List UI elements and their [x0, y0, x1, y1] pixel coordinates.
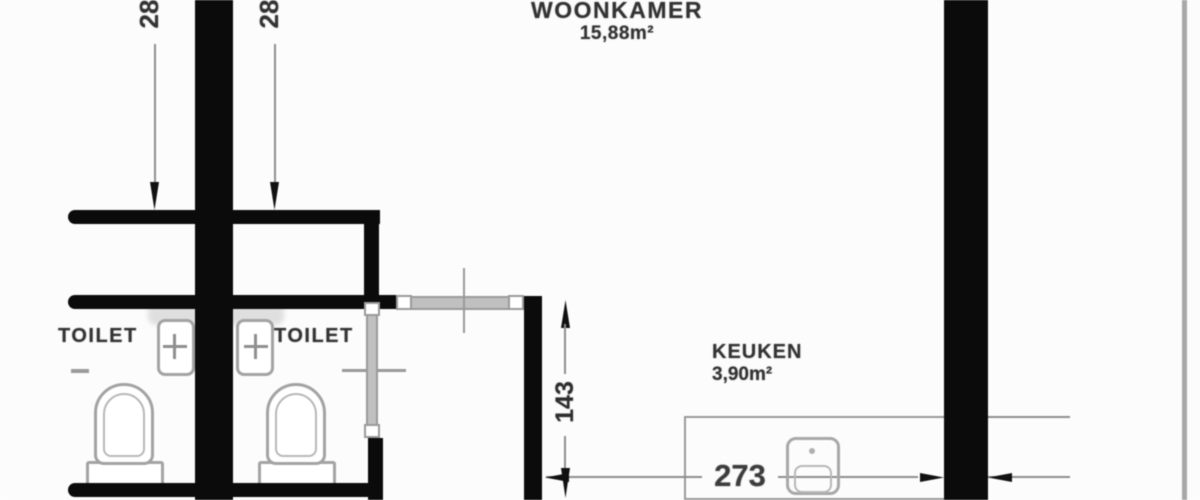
dimension-arrow-down-icon — [561, 468, 570, 498]
extension-line-upper — [988, 416, 1070, 418]
toilet-icon — [275, 393, 317, 457]
dimension-arrow-down-icon — [270, 182, 279, 210]
room-label-keuken: KEUKEN 3,90m² — [712, 341, 802, 386]
tap-cross-icon — [254, 334, 257, 359]
wall-right-vertical — [944, 0, 988, 500]
plan-edge-line — [1182, 0, 1187, 500]
wall-door-jamb-upper — [364, 210, 379, 305]
wall-kitchen-vertical — [524, 296, 542, 500]
tap-cross-icon — [173, 334, 176, 359]
room-label-woonkamer: WOONKAMER 15,88m² — [487, 0, 747, 45]
room-area: 3,90m² — [712, 364, 802, 386]
door-hinge-block — [364, 424, 380, 438]
floorplan-canvas: 28 28 WOONKAMER 15,88m² KEUKEN 3,90m² TO… — [0, 0, 1200, 500]
dimension-line-28-left — [154, 44, 156, 188]
window-center-tick — [463, 268, 465, 333]
faucet-icon — [809, 448, 815, 454]
window-end-block — [508, 295, 524, 310]
toilet-icon — [103, 393, 145, 457]
room-area: 15,88m² — [487, 23, 747, 45]
wall-door-jamb-lower — [368, 438, 383, 500]
room-name: WOONKAMER — [487, 0, 747, 23]
dimension-arrow-left-icon — [988, 473, 1012, 482]
kitchen-sink-icon — [794, 465, 832, 493]
room-label-toilet-left: TOILET — [58, 325, 138, 348]
window-end-block — [396, 295, 412, 310]
wall-mid-horizontal — [68, 295, 402, 309]
door-hinge-block — [364, 302, 380, 316]
window-icon — [410, 296, 510, 310]
wall-central-column — [195, 0, 233, 500]
room-name: KEUKEN — [712, 341, 802, 364]
paper-holder-mark — [71, 369, 89, 373]
dimension-label-273: 273 — [702, 458, 778, 494]
dimension-label-28-left: 28 — [128, 0, 172, 36]
dimension-line-28-right — [274, 44, 276, 188]
dimension-arrow-down-icon — [150, 182, 159, 210]
dimension-label-28-right: 28 — [248, 0, 292, 36]
door-icon — [366, 316, 378, 424]
room-label-toilet-right: TOILET — [274, 325, 354, 348]
